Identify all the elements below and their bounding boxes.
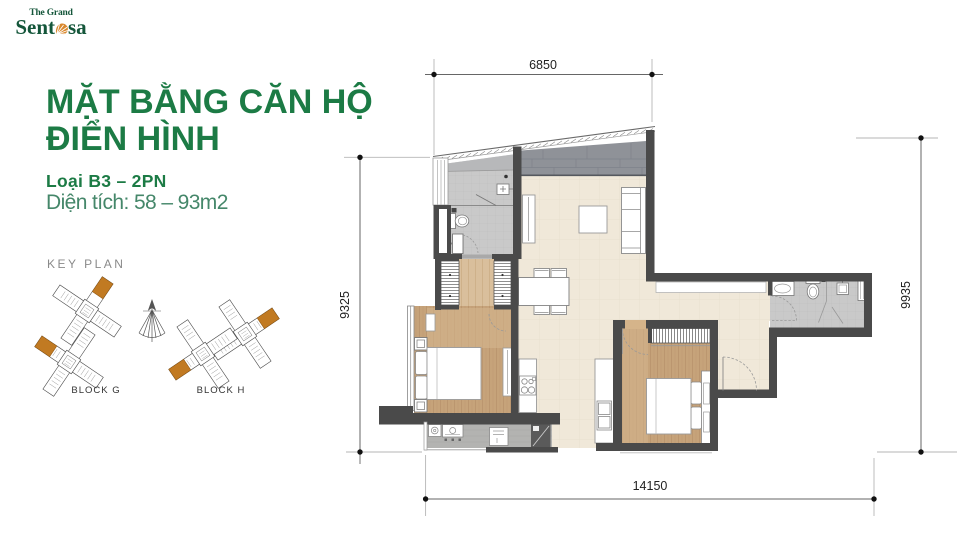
svg-text:14150: 14150 (633, 479, 668, 493)
svg-text:6850: 6850 (529, 58, 557, 72)
svg-text:BLOCK G: BLOCK G (71, 385, 120, 396)
svg-text:BLOCK H: BLOCK H (197, 385, 246, 396)
svg-text:KEY PLAN: KEY PLAN (47, 257, 125, 271)
svg-text:9325: 9325 (338, 291, 352, 319)
svg-text:9935: 9935 (899, 281, 913, 309)
